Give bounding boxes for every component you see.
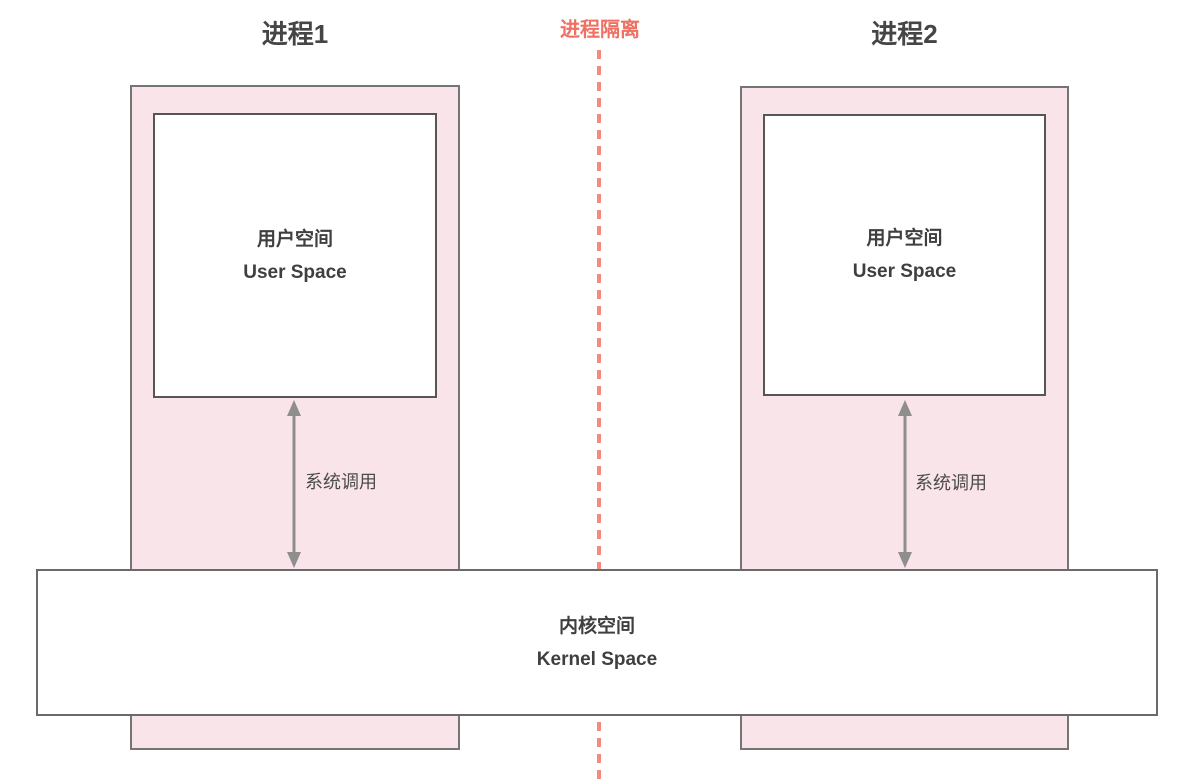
user-space-label-zh: 用户空间 bbox=[866, 222, 942, 255]
kernel-space-box: 内核空间 Kernel Space bbox=[36, 569, 1158, 716]
syscall-double-arrow-icon bbox=[283, 400, 305, 568]
process2-title: 进程2 bbox=[740, 16, 1069, 52]
process1-title: 进程1 bbox=[130, 16, 460, 52]
user-space-label-zh: 用户空间 bbox=[257, 223, 333, 256]
user-space-label-en: User Space bbox=[853, 255, 957, 288]
syscall-double-arrow-icon bbox=[894, 400, 916, 568]
kernel-space-label-zh: 内核空间 bbox=[559, 610, 635, 643]
syscall-label: 系统调用 bbox=[915, 469, 987, 495]
user-space-label-en: User Space bbox=[243, 256, 347, 289]
process-isolation-title: 进程隔离 bbox=[480, 17, 720, 43]
syscall-label: 系统调用 bbox=[305, 468, 377, 494]
kernel-space-label-en: Kernel Space bbox=[537, 643, 657, 676]
process2-user-space-box: 用户空间 User Space bbox=[763, 114, 1046, 396]
process1-user-space-box: 用户空间 User Space bbox=[153, 113, 437, 398]
diagram-canvas: 进程1 进程隔离 进程2 用户空间 User Space 系统调用 用户空间 U… bbox=[0, 0, 1200, 782]
